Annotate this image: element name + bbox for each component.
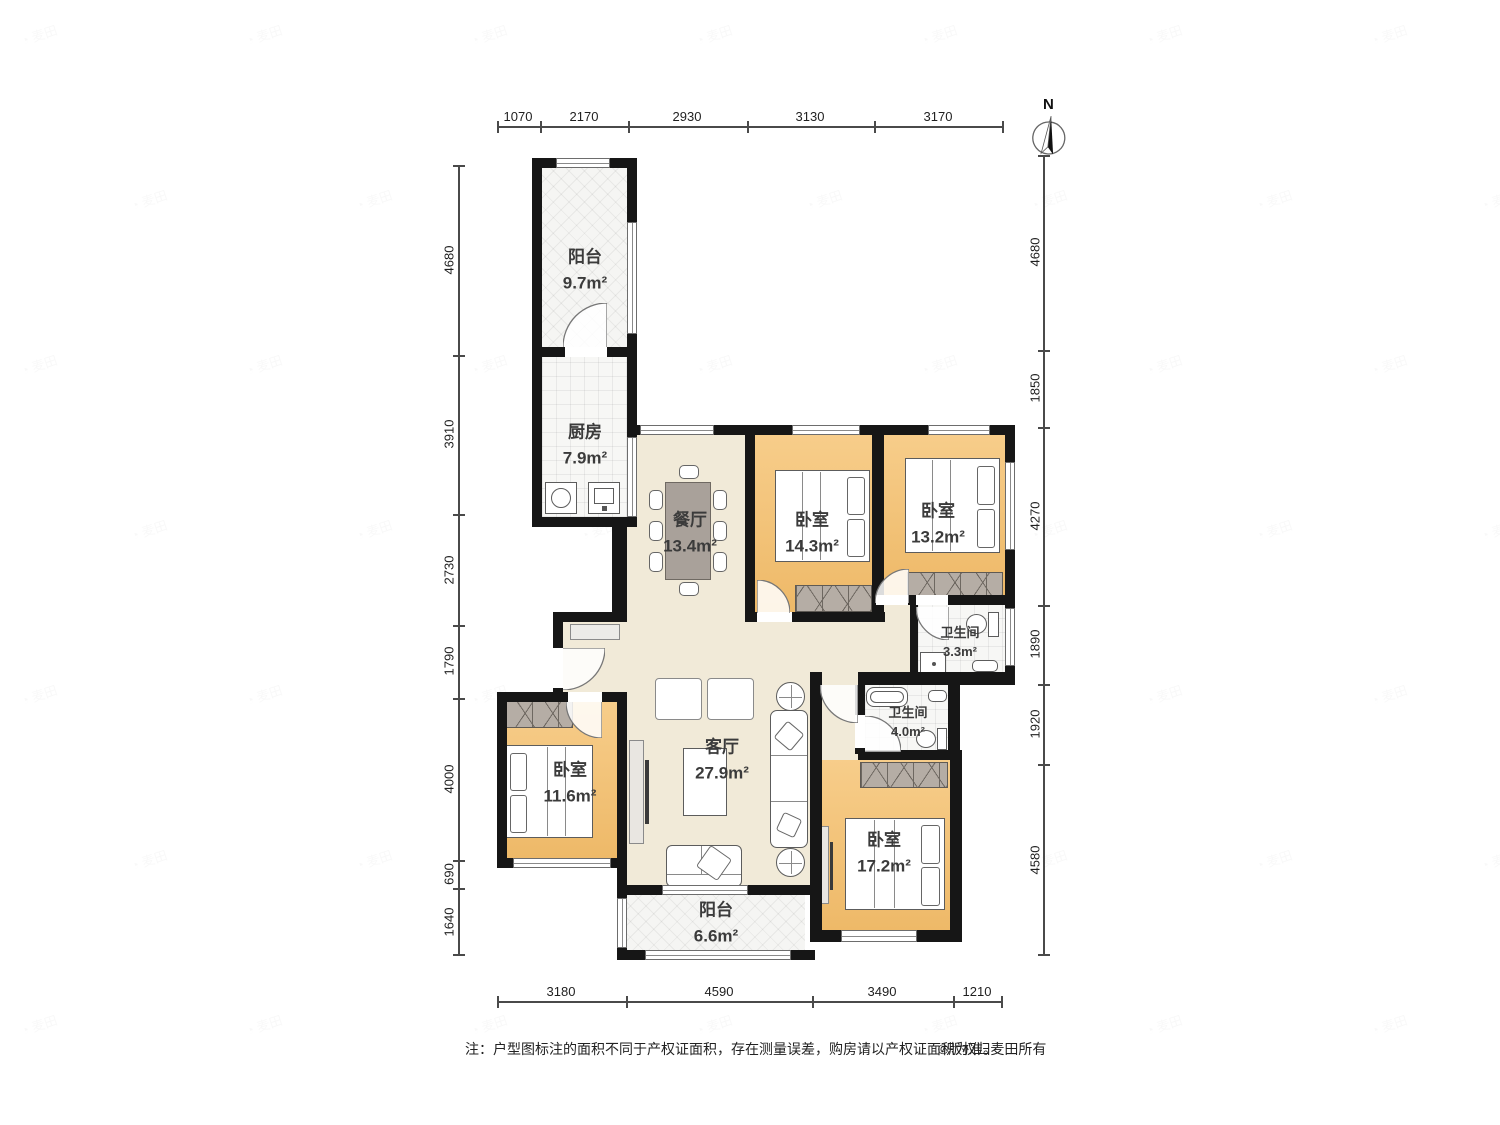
- room-label-bedroom-w: 卧室11.6m²: [544, 758, 597, 809]
- watermark: ◔ 麦田: [128, 515, 170, 545]
- sofa: [770, 710, 808, 848]
- door-arc-entry: [563, 648, 605, 690]
- toilet-tank: [988, 612, 999, 637]
- dim-top-3: 3130: [796, 109, 825, 124]
- door-arc-bedroom-w: [566, 702, 602, 738]
- wardrobe-bedroom-s: [860, 762, 948, 788]
- watermark: ◔ 麦田: [1143, 350, 1185, 380]
- door-opening: [568, 692, 602, 702]
- sliding-door-kitchen: [627, 437, 637, 517]
- copyright-note: ©版权归麦田所有: [938, 1039, 1046, 1059]
- door-opening: [757, 612, 792, 622]
- dim-top-1: 2170: [570, 109, 599, 124]
- window: [617, 898, 627, 948]
- dim-right-0: 4680: [1028, 238, 1043, 267]
- dim-left-5: 690: [442, 863, 457, 885]
- watermark: ◔ 麦田: [693, 350, 735, 380]
- watermark: ◔ 麦田: [243, 680, 285, 710]
- room-label-bath-small: 卫生间3.3m²: [940, 624, 979, 662]
- watermark: ◔ 麦田: [918, 350, 960, 380]
- watermark: ◔ 麦田: [918, 1010, 960, 1040]
- wall: [745, 435, 755, 612]
- dim-top-2: 2930: [673, 109, 702, 124]
- chair: [679, 465, 699, 479]
- dim-bottom-2: 3490: [868, 984, 897, 999]
- dim-right-1: 1850: [1028, 374, 1043, 403]
- floor-mat: [707, 678, 754, 720]
- watermark: ◔ 麦田: [128, 845, 170, 875]
- chair: [679, 582, 699, 596]
- watermark: ◔ 麦田: [803, 185, 845, 215]
- window: [556, 158, 610, 168]
- door-arc-bedroom-e: [875, 569, 909, 603]
- floor-mat: [655, 678, 702, 720]
- watermark: ◔ 麦田: [468, 20, 510, 50]
- watermark: ◔ 麦田: [1143, 20, 1185, 50]
- kitchen-sink: [588, 482, 620, 514]
- sink: [928, 690, 947, 702]
- window: [645, 950, 791, 960]
- dim-left-3: 1790: [442, 647, 457, 676]
- tv-living: [645, 760, 649, 824]
- ruler-right: [1043, 155, 1045, 955]
- watermark: ◔ 麦田: [18, 20, 60, 50]
- side-table: [776, 682, 805, 711]
- wardrobe-bedroom-e: [907, 572, 1003, 597]
- dim-bottom-0: 3180: [547, 984, 576, 999]
- watermark: ◔ 麦田: [1368, 350, 1410, 380]
- ruler-top: [497, 126, 1003, 128]
- dim-left-6: 1640: [442, 908, 457, 937]
- watermark: ◔ 麦田: [1478, 515, 1500, 545]
- watermark: ◔ 麦田: [1253, 845, 1295, 875]
- room-label-bedroom-ne: 卧室14.3m²: [785, 508, 839, 559]
- window: [513, 858, 611, 868]
- watermark: ◔ 麦田: [353, 185, 395, 215]
- window: [640, 425, 714, 435]
- wall: [612, 527, 627, 622]
- watermark: ◔ 麦田: [1368, 20, 1410, 50]
- chair: [649, 521, 663, 541]
- watermark: ◔ 麦田: [918, 20, 960, 50]
- floorplan-canvas: 阳台9.7m² 厨房7.9m² 餐厅13.4m² 卧室14.3m² 卧室13.2…: [0, 0, 1500, 1125]
- watermark: ◔ 麦田: [1028, 185, 1070, 215]
- door-opening: [916, 595, 948, 605]
- wall: [553, 612, 627, 622]
- room-label-bedroom-e: 卧室13.2m²: [911, 499, 965, 550]
- watermark: ◔ 麦田: [243, 350, 285, 380]
- room-label-living: 客厅27.9m²: [695, 735, 749, 786]
- dim-top-0: 1070: [504, 109, 533, 124]
- room-label-kitchen: 厨房7.9m²: [563, 420, 607, 471]
- window: [928, 425, 990, 435]
- watermark: ◔ 麦田: [353, 515, 395, 545]
- watermark: ◔ 麦田: [1368, 1010, 1410, 1040]
- dim-left-1: 3910: [442, 420, 457, 449]
- watermark: ◔ 麦田: [353, 845, 395, 875]
- tv-bedroom-s: [830, 842, 833, 890]
- dim-right-4: 1920: [1028, 710, 1043, 739]
- window: [841, 930, 917, 942]
- watermark: ◔ 麦田: [1253, 515, 1295, 545]
- dim-left-4: 4000: [442, 765, 457, 794]
- wall: [497, 692, 507, 868]
- door-arc-bedroom-s: [820, 685, 858, 723]
- dim-left-0: 4680: [442, 246, 457, 275]
- window: [1005, 462, 1015, 550]
- watermark: ◔ 麦田: [1253, 185, 1295, 215]
- door-opening: [565, 347, 607, 357]
- wall: [553, 622, 563, 648]
- dim-right-2: 4270: [1028, 502, 1043, 531]
- window: [792, 425, 860, 435]
- watermark: ◔ 麦田: [1478, 845, 1500, 875]
- wall: [532, 158, 542, 527]
- watermark: ◔ 麦田: [693, 1010, 735, 1040]
- watermark: ◔ 麦田: [468, 1010, 510, 1040]
- wardrobe-bedroom-ne: [795, 585, 872, 612]
- watermark: ◔ 麦田: [1143, 1010, 1185, 1040]
- watermark: ◔ 麦田: [243, 20, 285, 50]
- watermark: ◔ 麦田: [128, 185, 170, 215]
- door-opening: [553, 648, 563, 688]
- room-label-balcony-bottom: 阳台6.6m²: [694, 898, 738, 949]
- ruler-left: [458, 165, 460, 955]
- wardrobe-bedroom-w: [505, 700, 573, 728]
- window: [627, 222, 637, 334]
- toilet-tank: [937, 728, 947, 750]
- watermark: ◔ 麦田: [1143, 680, 1185, 710]
- dim-bottom-1: 4590: [705, 984, 734, 999]
- sliding-door-balcony: [662, 885, 748, 895]
- wall: [948, 685, 960, 760]
- ruler-bottom: [497, 1001, 1002, 1003]
- room-label-bedroom-s: 卧室17.2m²: [857, 828, 911, 879]
- door-arc-balcony-top: [563, 303, 607, 347]
- side-table: [776, 848, 805, 877]
- watermark: ◔ 麦田: [1368, 680, 1410, 710]
- dim-bottom-3: 1210: [963, 984, 992, 999]
- watermark: ◔ 麦田: [468, 350, 510, 380]
- room-label-balcony-top: 阳台9.7m²: [563, 245, 607, 296]
- watermark: ◔ 麦田: [693, 20, 735, 50]
- room-label-bath-large: 卫生间4.0m²: [888, 704, 927, 742]
- shoe-cabinet: [570, 624, 620, 640]
- wall: [748, 885, 815, 895]
- washing-machine: [545, 482, 577, 514]
- window: [1005, 608, 1015, 666]
- watermark: ◔ 麦田: [18, 680, 60, 710]
- loveseat: [666, 845, 742, 887]
- wall: [858, 672, 1015, 685]
- chair: [649, 490, 663, 510]
- compass-icon: [1026, 110, 1073, 162]
- watermark: ◔ 麦田: [18, 350, 60, 380]
- wall: [497, 692, 627, 702]
- door-arc-bedroom-ne: [757, 580, 790, 613]
- wall: [627, 885, 662, 895]
- wall: [532, 517, 637, 527]
- watermark: ◔ 麦田: [243, 1010, 285, 1040]
- dim-right-5: 4580: [1028, 846, 1043, 875]
- wall: [950, 750, 962, 942]
- dim-left-2: 2730: [442, 556, 457, 585]
- dim-right-3: 1890: [1028, 630, 1043, 659]
- disclaimer-note: 注：户型图标注的面积不同于产权证面积，存在测量误差，购房请以产权证面积为准。: [465, 1039, 997, 1059]
- dim-top-4: 3170: [924, 109, 953, 124]
- tv-cabinet-living: [629, 740, 644, 844]
- chair: [649, 552, 663, 572]
- watermark: ◔ 麦田: [18, 1010, 60, 1040]
- watermark: ◔ 麦田: [1478, 185, 1500, 215]
- room-label-dining: 餐厅13.4m²: [663, 508, 717, 559]
